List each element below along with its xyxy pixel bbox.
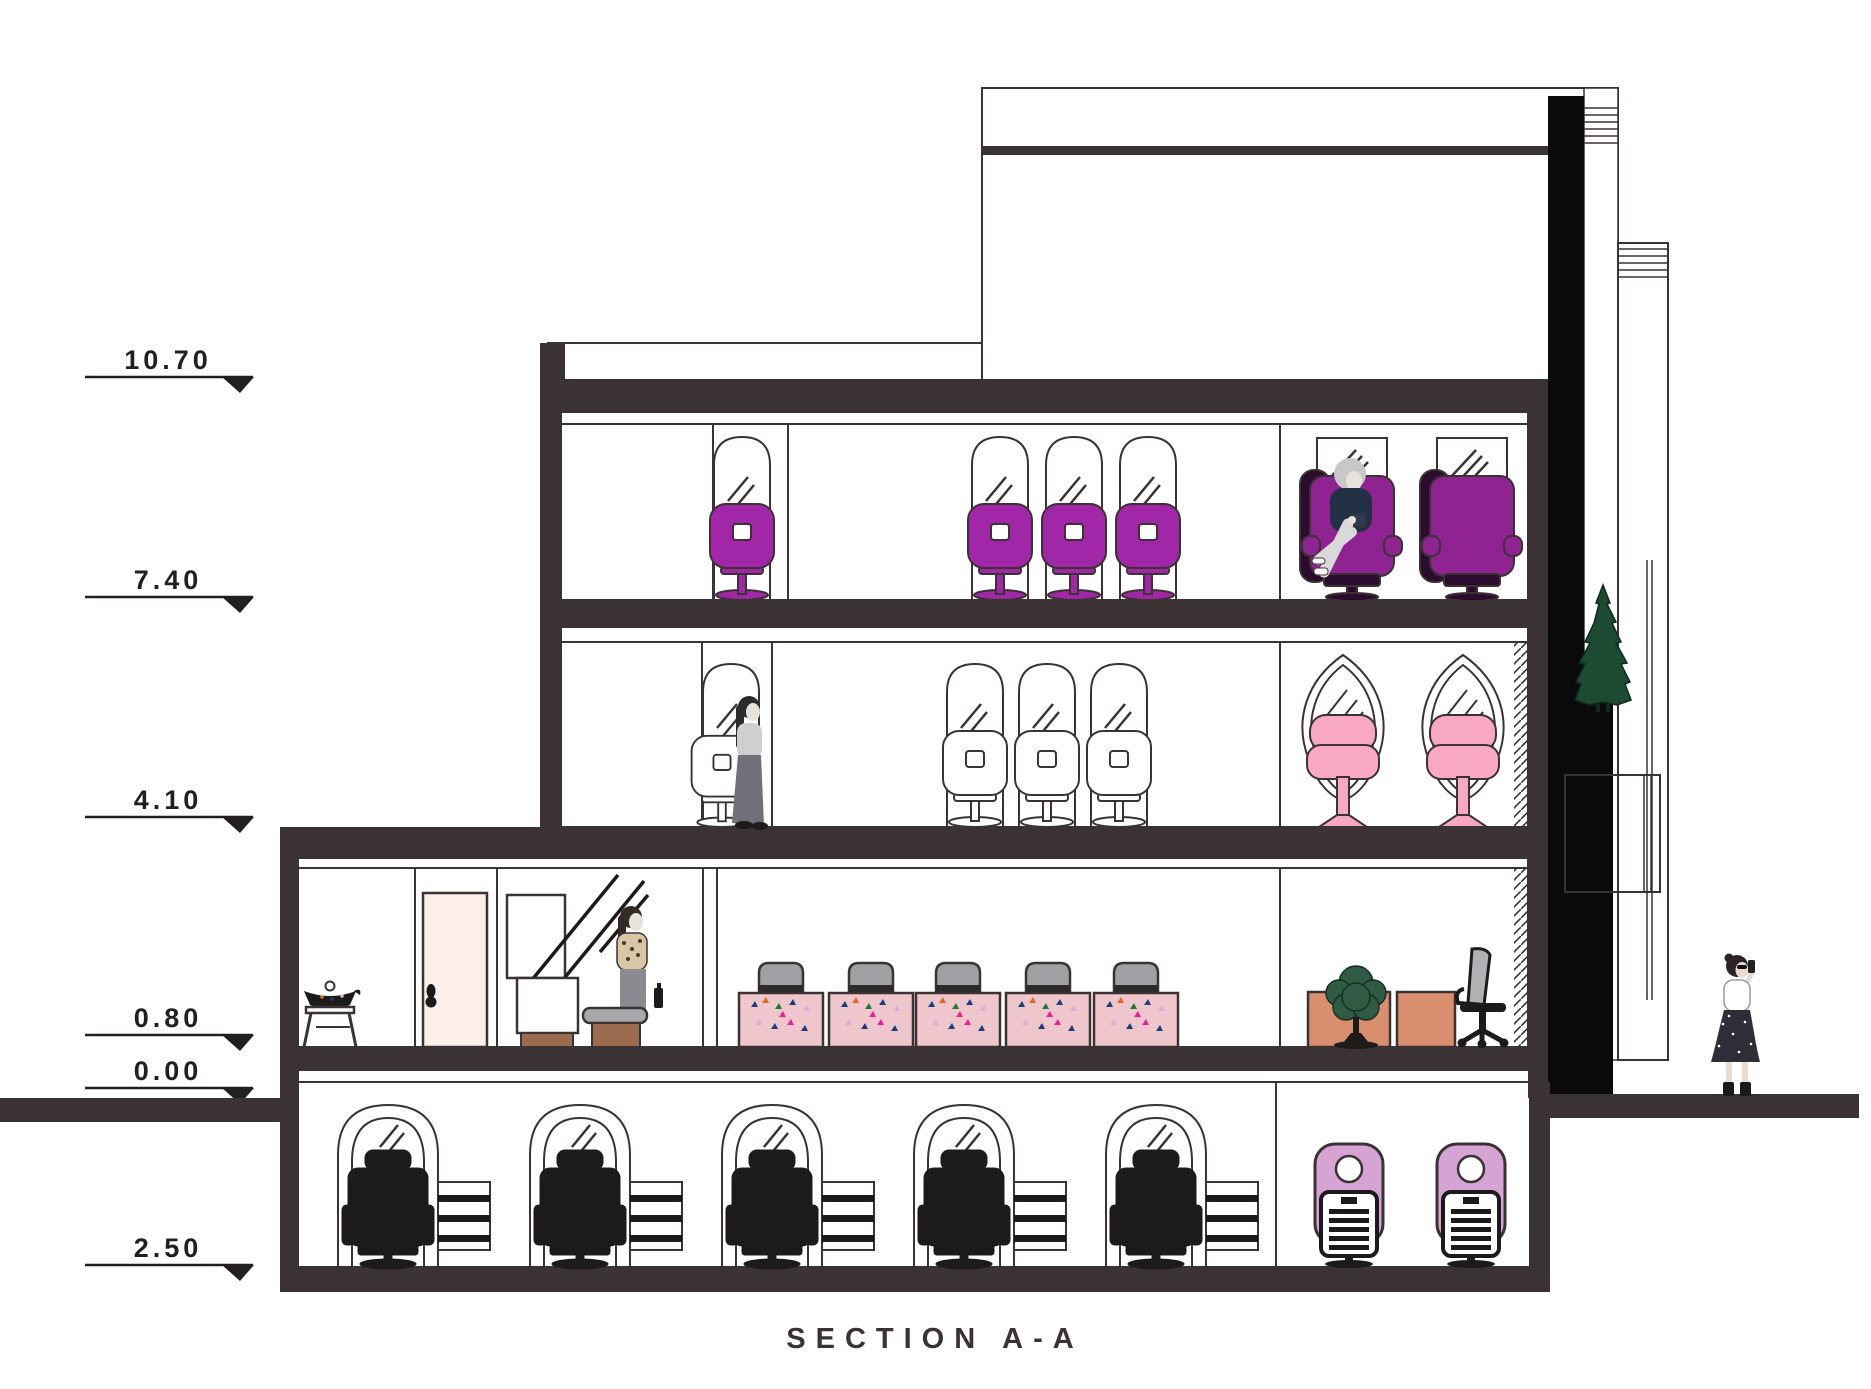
elevation-marker-0-00: 0.00 [85, 1056, 254, 1104]
office-chair [1457, 949, 1509, 1049]
elevation-marker-0-80: 0.80 [85, 1003, 254, 1051]
elevation-arrow-icon [222, 1265, 254, 1281]
massage-chair [1420, 470, 1522, 601]
pedicure-chair-pink [1307, 715, 1379, 827]
ground-floor [298, 858, 1528, 1049]
side-table [304, 982, 360, 1048]
stair-tower [1618, 243, 1668, 1060]
annex-block [1548, 703, 1613, 1095]
hood-dryer [916, 963, 1000, 1047]
entry-door [423, 893, 487, 1047]
section-drawing: 10.70 7.40 4.10 0.80 0.00 2.50 [0, 0, 1871, 1389]
rooftop-volume [982, 88, 1618, 380]
styling-chair-white [1087, 731, 1151, 827]
elevation-markers: 10.70 7.40 4.10 0.80 0.00 2.50 [85, 345, 254, 1281]
rooftop-volume-band [982, 146, 1548, 155]
elevation-marker-minus-2-50: 2.50 [85, 1233, 254, 1281]
roof-slab [540, 380, 1548, 412]
elevation-arrow-icon [222, 597, 254, 613]
elevation-marker-4-10: 4.10 [85, 785, 254, 833]
barber-station [338, 1105, 490, 1269]
barber-station [1106, 1105, 1258, 1269]
hood-dryer [1094, 963, 1178, 1047]
pedicure-chair-pink [1427, 715, 1499, 827]
elevation-marker-7-40: 7.40 [85, 565, 254, 613]
barber-station [914, 1105, 1066, 1269]
floor3-slab [540, 600, 1548, 627]
elevation-label: 0.00 [134, 1056, 203, 1086]
roof-parapet [548, 343, 982, 380]
elevation-label: 7.40 [134, 565, 203, 595]
right-wall [1528, 412, 1548, 1098]
ground-floor-slab [298, 1047, 1528, 1070]
elevation-label: 2.50 [134, 1233, 203, 1263]
right-wall-basement [1530, 1082, 1550, 1292]
left-wall-lower [280, 827, 298, 1292]
floor2-ceiling-strip [561, 627, 1528, 642]
styling-chair-purple [710, 504, 774, 600]
elevation-label: 0.80 [134, 1003, 203, 1033]
hood-dryer [739, 963, 823, 1047]
barber-station [530, 1105, 682, 1269]
elevation-label: 4.10 [134, 785, 203, 815]
elevation-label: 10.70 [124, 345, 212, 375]
styling-chair-purple [1042, 504, 1106, 600]
pump-bottle-icon [654, 988, 663, 1008]
pedestrian-figure [1711, 954, 1760, 1097]
ground-line-right [1550, 1094, 1859, 1118]
floor2-salon [561, 627, 1528, 830]
elevator-shaft [1548, 96, 1584, 703]
barber-station [722, 1105, 874, 1269]
office-corner [1308, 949, 1509, 1049]
drawing-title: SECTION A-A [786, 1323, 1083, 1355]
stair-tower-slats-icon [1618, 249, 1668, 277]
floor3-salon [561, 412, 1528, 601]
elevation-marker-10-70: 10.70 [85, 345, 254, 393]
hood-dryer [829, 963, 913, 1047]
floor2-slab [280, 827, 1548, 858]
basement-barbershop [298, 1070, 1530, 1269]
architectural-section-page: 10.70 7.40 4.10 0.80 0.00 2.50 [0, 0, 1871, 1389]
elevation-arrow-icon [222, 377, 254, 393]
ground-floor-ceiling-strip [298, 858, 1528, 868]
basement-slab [280, 1267, 1550, 1292]
styling-chair-white [1015, 731, 1079, 827]
office-cabinet [1397, 992, 1455, 1047]
styling-chair-purple [968, 504, 1032, 600]
ground-line-left [0, 1098, 280, 1122]
elevation-arrow-icon [222, 1035, 254, 1051]
styling-chair-purple [1116, 504, 1180, 600]
elevation-arrow-icon [222, 817, 254, 833]
wash-station [1437, 1144, 1505, 1268]
basement-ceiling-strip [298, 1070, 1530, 1082]
wall-hatch [1514, 642, 1528, 827]
wall-hatch [1514, 868, 1528, 1047]
receptionist-figure [617, 906, 647, 1013]
hood-dryer [1006, 963, 1090, 1047]
floor3-ceiling-strip [561, 412, 1528, 424]
left-wall-upper [540, 343, 561, 827]
styling-chair-white [943, 731, 1007, 827]
wash-station [1315, 1144, 1383, 1268]
standing-stylist-figure [732, 696, 768, 830]
